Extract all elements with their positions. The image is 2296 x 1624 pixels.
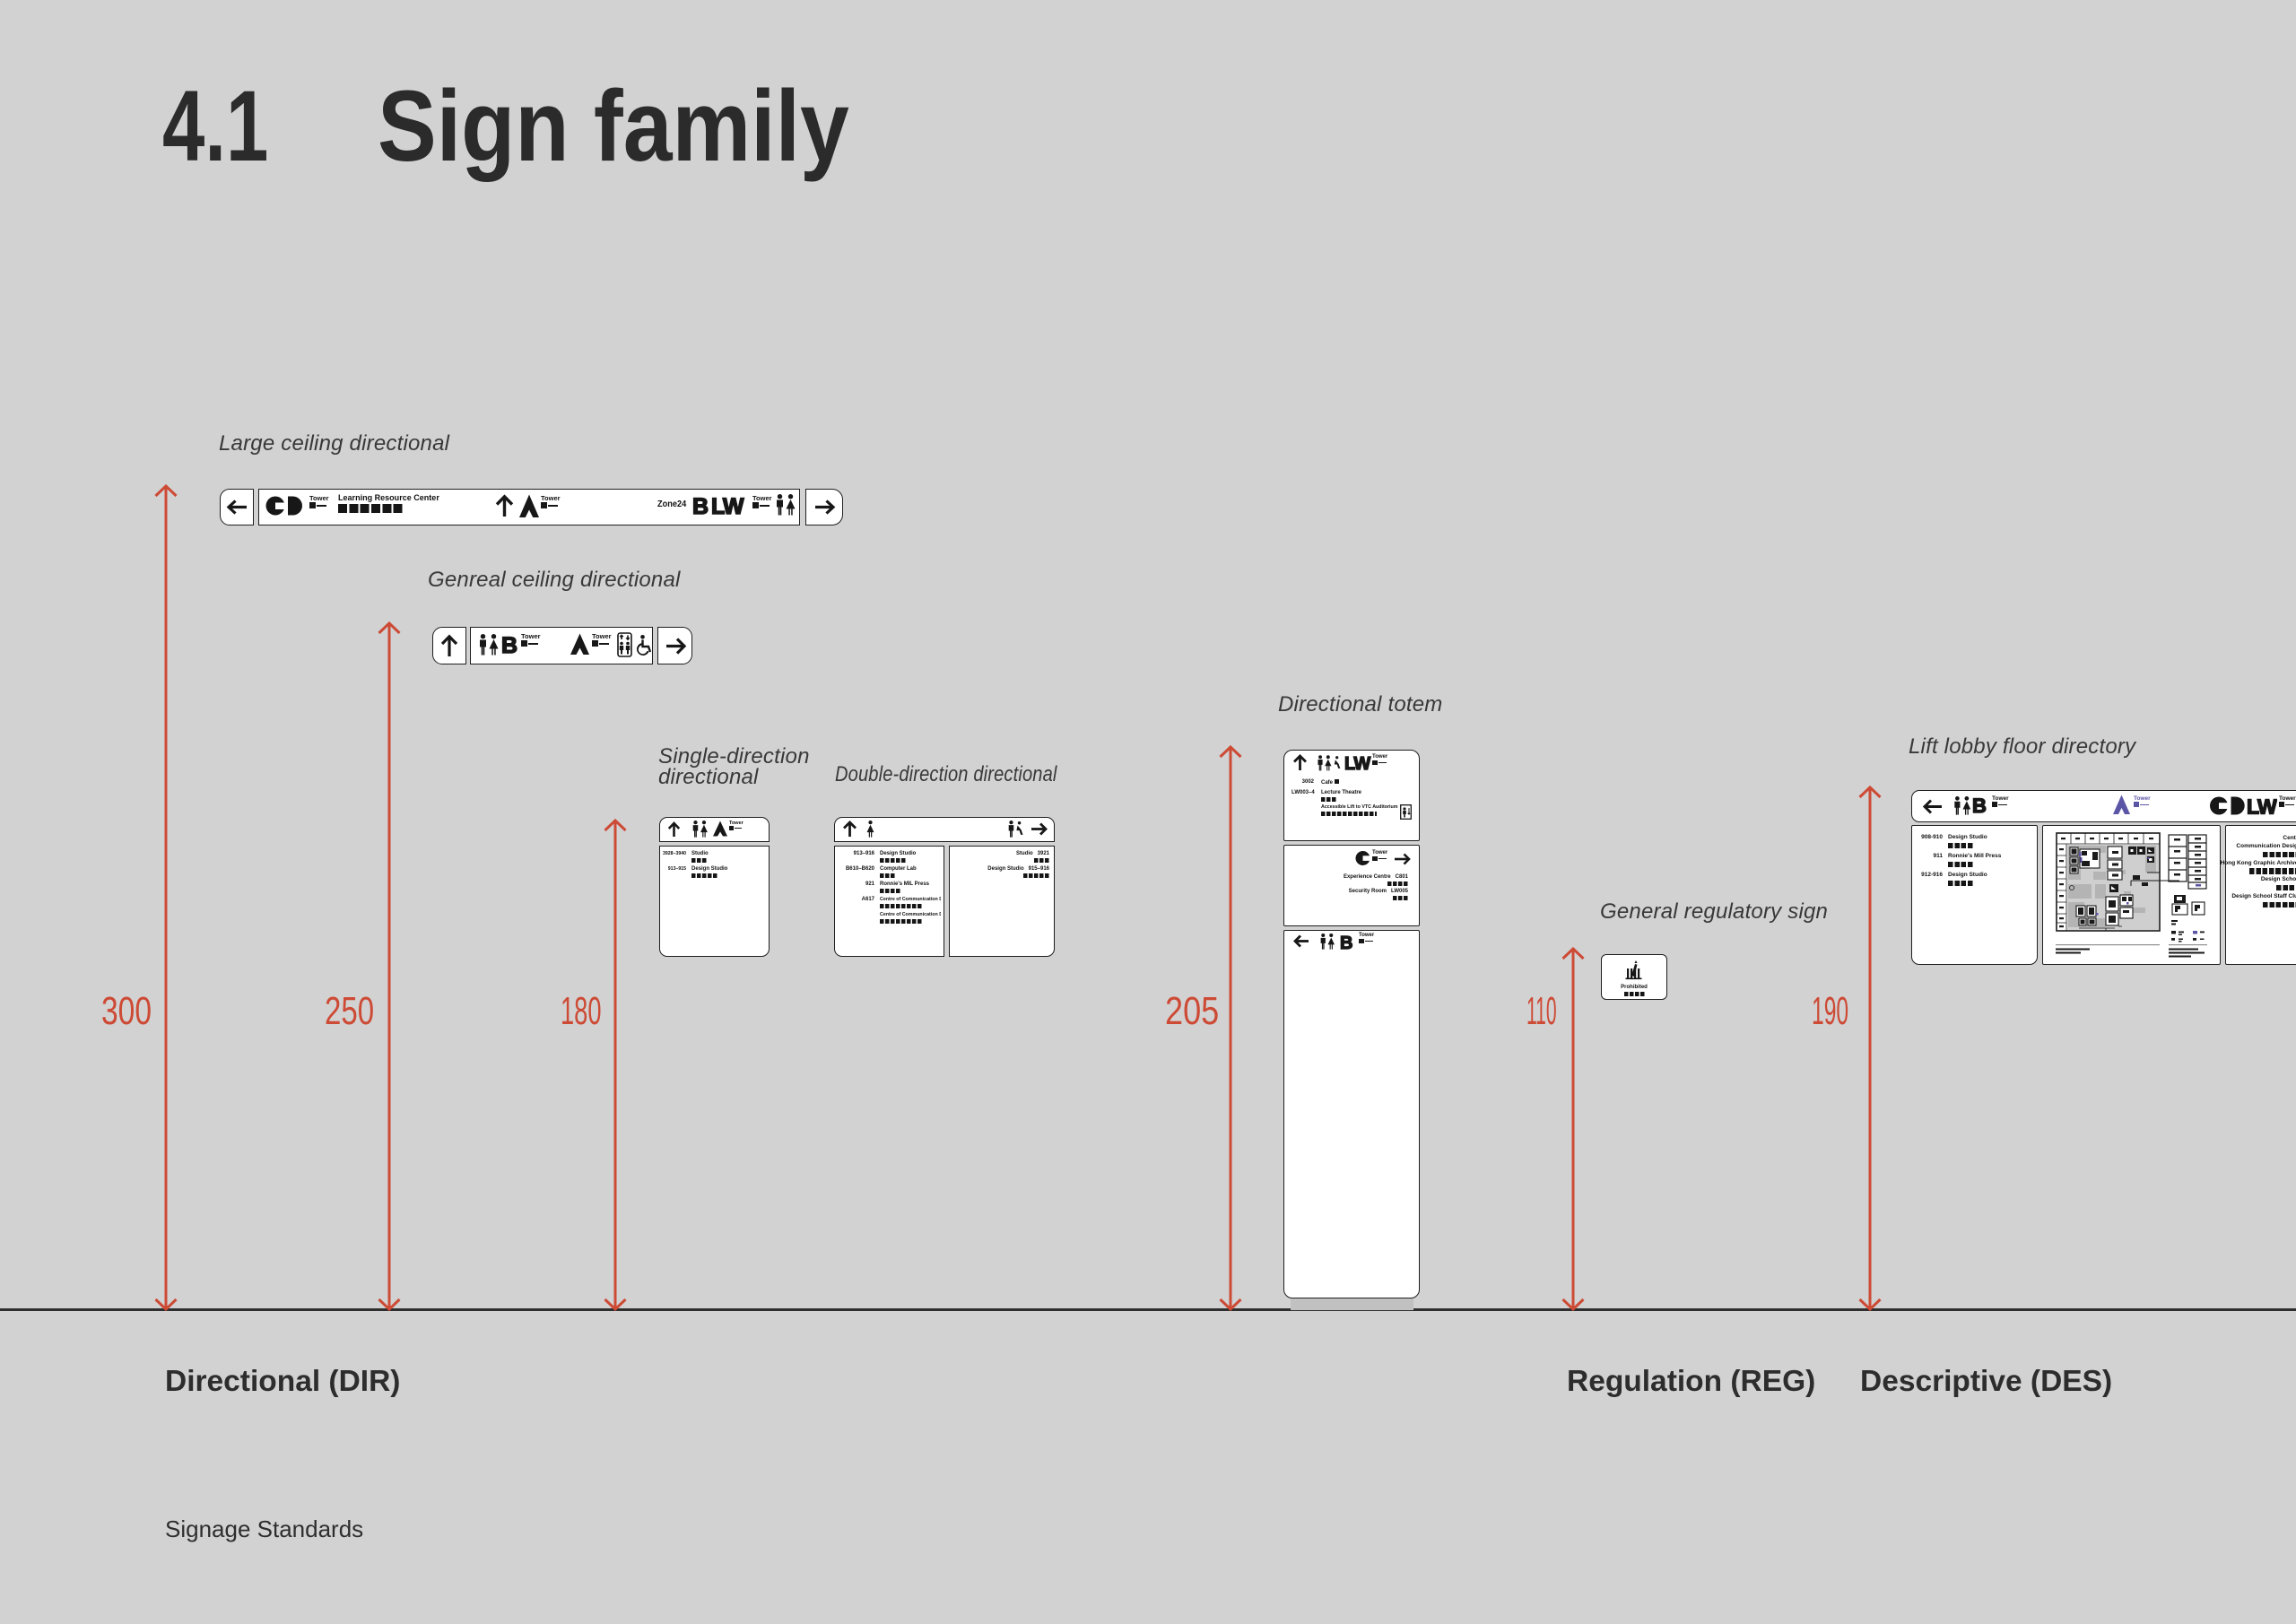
svg-text:LW: LW <box>1344 754 1370 774</box>
svg-text:B: B <box>501 633 517 657</box>
svg-text:B: B <box>1972 795 1987 817</box>
svg-text:B: B <box>692 494 709 518</box>
svg-text:B: B <box>1340 934 1352 953</box>
svg-text:LW: LW <box>711 494 744 518</box>
svg-text:LW: LW <box>2247 795 2277 818</box>
